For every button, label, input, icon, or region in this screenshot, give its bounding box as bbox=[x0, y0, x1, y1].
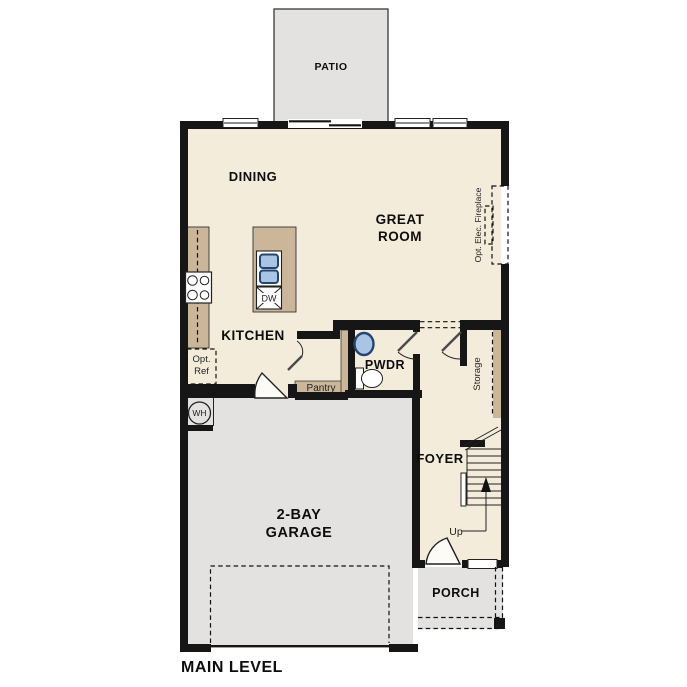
toilet-bowl bbox=[362, 370, 383, 388]
garage-label-2: GARAGE bbox=[266, 525, 333, 541]
great-room-label-1: GREAT bbox=[376, 212, 425, 227]
floor-plan-drawing: PATIO bbox=[0, 0, 687, 687]
patio: PATIO bbox=[274, 9, 388, 124]
wall-right-lower bbox=[501, 262, 509, 567]
stair-handrail bbox=[461, 473, 466, 506]
foyer-label: FOYER bbox=[416, 451, 463, 466]
wall-entry-left bbox=[412, 560, 425, 568]
wall-kitchen-garage-left bbox=[180, 384, 255, 398]
great-room-label-2: ROOM bbox=[378, 229, 422, 244]
wall-pwdr-right-jamb bbox=[413, 320, 420, 332]
pantry-label: Pantry bbox=[307, 383, 336, 394]
garage-label-1: 2-BAY bbox=[277, 507, 322, 523]
up-label: Up bbox=[449, 526, 463, 538]
window-foyer bbox=[468, 560, 497, 569]
pwdr-sink bbox=[355, 333, 374, 355]
opt-ref-label-1: Opt. bbox=[193, 354, 211, 365]
wall-garage-foyer bbox=[412, 390, 420, 567]
floor-plan: PATIO bbox=[0, 0, 687, 687]
wall-entry-mid bbox=[462, 560, 468, 568]
fireplace-label: Opt. Elec. Fireplace bbox=[473, 187, 483, 262]
wall-storage-stub bbox=[460, 330, 467, 366]
fireplace-wall-gap bbox=[501, 186, 510, 264]
opt-ref-label-2: Ref bbox=[194, 366, 209, 377]
porch-label: PORCH bbox=[432, 586, 480, 600]
garage-door bbox=[211, 645, 389, 647]
storage-shelf bbox=[493, 330, 502, 418]
wall-right-upper bbox=[501, 121, 509, 188]
water-heater-label: WH bbox=[192, 408, 206, 418]
wall-greatroom-south-a bbox=[333, 320, 420, 330]
wall-greatroom-south-b bbox=[460, 320, 503, 330]
wall-wh-stub bbox=[180, 425, 213, 431]
sink-basin-top bbox=[260, 255, 278, 269]
patio-label: PATIO bbox=[314, 61, 347, 73]
wall-garage-front-left bbox=[180, 644, 211, 652]
wall-pantry-corner bbox=[333, 320, 340, 339]
wall-entry-right bbox=[497, 560, 503, 568]
wall-pwdr-left bbox=[348, 320, 355, 398]
dishwasher-label: DW bbox=[262, 294, 277, 304]
storage-label: Storage bbox=[472, 357, 483, 390]
dining-label: DINING bbox=[229, 169, 278, 184]
kitchen-label: KITCHEN bbox=[221, 328, 285, 343]
sink-basin-bottom bbox=[260, 271, 278, 284]
plan-title: MAIN LEVEL bbox=[181, 659, 283, 676]
wall-garage-front-right bbox=[389, 644, 418, 652]
wall-pwdr-bottom bbox=[345, 390, 422, 398]
pwdr-label: PWDR bbox=[365, 358, 405, 372]
